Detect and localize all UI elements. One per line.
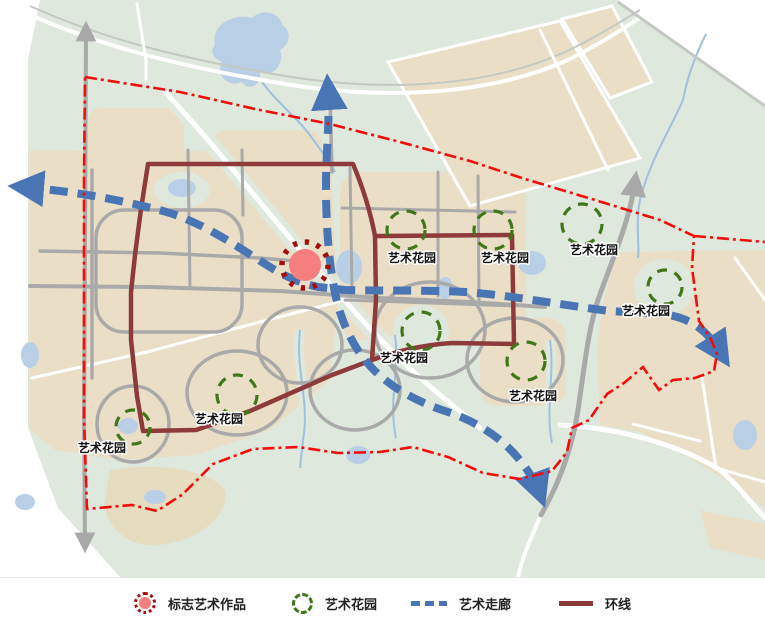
art-garden-label: 艺术花园 — [622, 303, 670, 318]
planning-map: 艺术花园艺术花园艺术花园艺术花园艺术花园艺术花园艺术花园艺术花园 — [0, 0, 765, 578]
art-garden-label: 艺术花园 — [380, 350, 428, 365]
art-garden-label: 艺术花园 — [195, 411, 243, 426]
legend-item-ring: 环线 — [559, 594, 631, 613]
legend-item-garden: 艺术花园 — [292, 593, 377, 614]
legend-bar: 标志艺术作品 艺术花园 艺术走廊 环线 — [0, 578, 765, 628]
art-garden-label: 艺术花园 — [78, 440, 126, 455]
planning-map-page: 艺术花园艺术花园艺术花园艺术花园艺术花园艺术花园艺术花园艺术花园 标志艺术作品 … — [0, 0, 765, 628]
legend-label: 艺术走廊 — [459, 594, 511, 613]
art-corridor-icon — [411, 601, 447, 606]
ring-line-icon — [559, 601, 593, 606]
art-garden-label: 艺术花园 — [509, 388, 557, 403]
art-garden-icon — [292, 593, 313, 614]
legend-label: 艺术花园 — [325, 594, 377, 613]
legend-label: 标志艺术作品 — [168, 594, 246, 613]
landmark-artwork-icon — [134, 592, 156, 614]
art-garden-label: 艺术花园 — [388, 250, 436, 265]
legend-item-landmark: 标志艺术作品 — [134, 592, 246, 614]
legend-label: 环线 — [605, 594, 631, 613]
art-garden-label: 艺术花园 — [570, 242, 618, 257]
art-garden-label: 艺术花园 — [481, 250, 529, 265]
legend-item-corridor: 艺术走廊 — [411, 594, 511, 613]
